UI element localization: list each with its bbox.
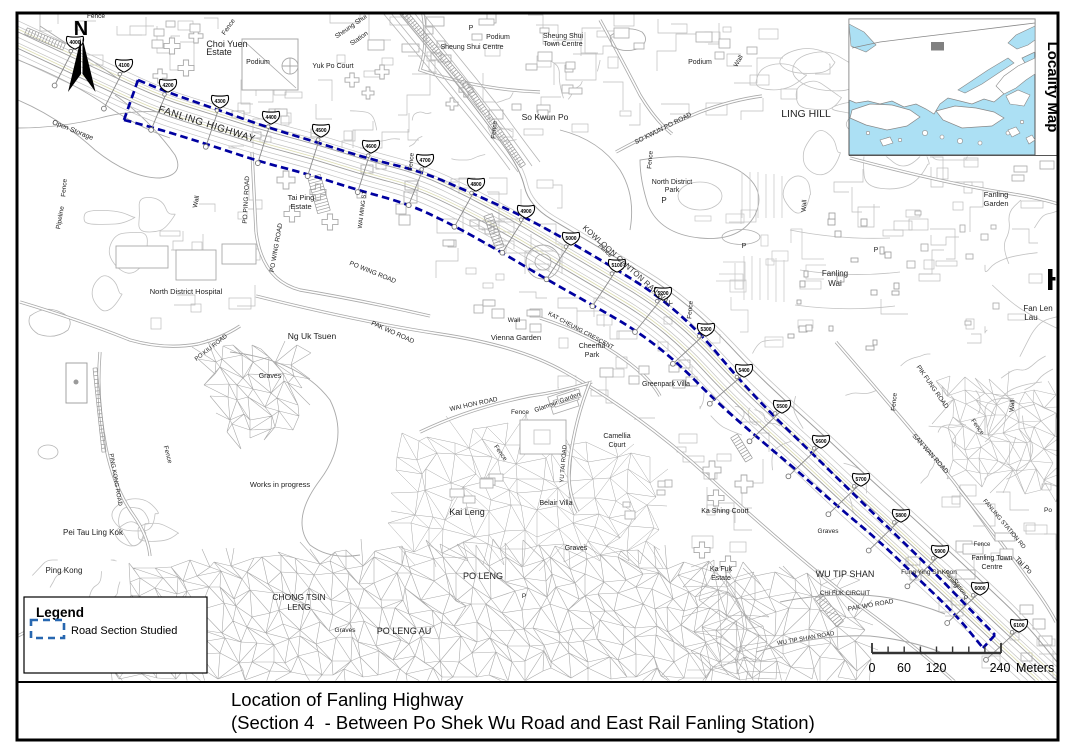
svg-text:120: 120 <box>926 661 947 675</box>
svg-text:Kai Leng: Kai Leng <box>449 507 485 517</box>
svg-text:4700: 4700 <box>419 158 430 164</box>
svg-text:Wall: Wall <box>800 199 808 213</box>
svg-text:5500: 5500 <box>776 404 787 410</box>
svg-text:Podium: Podium <box>688 59 712 66</box>
svg-text:4000: 4000 <box>69 40 80 46</box>
svg-text:LING HILL: LING HILL <box>781 108 831 120</box>
svg-text:P: P <box>742 243 747 250</box>
svg-text:4400: 4400 <box>265 115 276 121</box>
svg-text:So Kwun Po: So Kwun Po <box>522 112 569 122</box>
svg-text:Park: Park <box>665 187 680 194</box>
svg-text:5900: 5900 <box>934 549 945 555</box>
svg-text:Sheung Shui: Sheung Shui <box>543 33 584 40</box>
svg-text:Camellia: Camellia <box>603 433 630 440</box>
svg-text:6100: 6100 <box>1013 623 1024 629</box>
svg-text:P: P <box>661 196 666 205</box>
svg-text:Podium: Podium <box>246 59 270 66</box>
svg-text:PO LENG AU: PO LENG AU <box>377 626 432 636</box>
svg-text:Sheung Shui Centre: Sheung Shui Centre <box>440 44 503 51</box>
svg-text:Fanling: Fanling <box>984 190 1009 199</box>
svg-text:0: 0 <box>869 661 876 675</box>
svg-text:5700: 5700 <box>855 477 866 483</box>
svg-text:N: N <box>74 18 88 40</box>
svg-text:Fanling Town: Fanling Town <box>971 555 1012 562</box>
svg-text:Court: Court <box>608 442 625 449</box>
svg-text:Ng Uk Tsuen: Ng Uk Tsuen <box>288 331 337 341</box>
svg-text:Yuk Po Court: Yuk Po Court <box>312 63 353 70</box>
svg-text:Centre: Centre <box>981 564 1002 571</box>
svg-text:Graves: Graves <box>259 373 282 380</box>
svg-text:Wai: Wai <box>828 279 842 288</box>
svg-text:P: P <box>469 25 474 32</box>
svg-text:4200: 4200 <box>162 83 173 89</box>
svg-text:Wall: Wall <box>1008 399 1016 413</box>
svg-text:Road Section Studied: Road Section Studied <box>71 625 177 637</box>
svg-text:Estate: Estate <box>290 202 311 211</box>
svg-text:WU TIP SHAN: WU TIP SHAN <box>816 569 875 579</box>
svg-text:North District: North District <box>652 179 693 186</box>
svg-text:60: 60 <box>897 661 911 675</box>
svg-text:240: 240 <box>990 661 1011 675</box>
svg-text:Town Centre: Town Centre <box>543 41 582 48</box>
svg-text:5000: 5000 <box>565 236 576 242</box>
svg-text:Wall: Wall <box>508 317 521 324</box>
svg-text:4100: 4100 <box>118 63 129 69</box>
svg-text:Graves: Graves <box>565 545 588 552</box>
svg-text:Greenpark Villa: Greenpark Villa <box>642 381 690 388</box>
svg-text:Ka Shing Court: Ka Shing Court <box>701 508 749 515</box>
svg-text:Belair Villa: Belair Villa <box>540 500 573 507</box>
svg-text:Estate: Estate <box>206 47 232 57</box>
svg-text:Ping Kong: Ping Kong <box>46 566 83 575</box>
svg-text:Fence: Fence <box>511 409 529 416</box>
svg-text:5600: 5600 <box>815 439 826 445</box>
svg-text:5800: 5800 <box>895 513 906 519</box>
svg-text:Fan Len: Fan Len <box>1023 304 1052 313</box>
svg-text:4900: 4900 <box>520 209 531 215</box>
svg-text:5400: 5400 <box>738 368 749 374</box>
svg-text:Park: Park <box>585 352 600 359</box>
svg-text:Fence: Fence <box>974 542 991 548</box>
svg-text:P: P <box>874 247 879 254</box>
svg-text:Po: Po <box>1044 507 1052 514</box>
svg-text:4800: 4800 <box>470 182 481 188</box>
svg-text:Garden: Garden <box>983 199 1008 208</box>
svg-text:Works in progress: Works in progress <box>250 480 311 489</box>
svg-text:Fanling: Fanling <box>822 269 848 278</box>
svg-text:4300: 4300 <box>214 99 225 105</box>
svg-text:6000: 6000 <box>974 586 985 592</box>
svg-text:(Section 4 - Between Po Shek: (Section 4 - Between Po Shek Wu Road and… <box>231 712 815 733</box>
svg-text:Graves: Graves <box>335 627 357 634</box>
svg-text:Tai Ping: Tai Ping <box>288 193 315 202</box>
svg-text:Ka Fuk: Ka Fuk <box>710 566 733 573</box>
svg-text:5300: 5300 <box>700 327 711 333</box>
svg-text:Legend: Legend <box>36 605 84 620</box>
svg-text:P: P <box>964 595 968 602</box>
svg-text:Vienna Garden: Vienna Garden <box>491 333 541 342</box>
svg-text:4500: 4500 <box>315 128 326 134</box>
svg-text:PO LENG: PO LENG <box>463 571 503 581</box>
svg-text:Graves: Graves <box>818 528 840 535</box>
svg-text:Estate: Estate <box>711 575 731 582</box>
svg-text:Meters: Meters <box>1016 661 1054 675</box>
svg-text:LENG: LENG <box>287 602 310 612</box>
svg-text:4600: 4600 <box>365 144 376 150</box>
svg-text:P: P <box>522 593 526 600</box>
svg-text:CHI FUK CIRCUIT: CHI FUK CIRCUIT <box>820 591 870 597</box>
svg-text:Lau: Lau <box>1024 313 1037 322</box>
svg-text:Location of Fanling Highway: Location of Fanling Highway <box>231 689 464 710</box>
svg-text:North District Hospital: North District Hospital <box>150 287 223 296</box>
svg-text:CHONG TSIN: CHONG TSIN <box>272 592 325 602</box>
svg-text:Podium: Podium <box>486 34 510 41</box>
svg-text:Pei Tau Ling Kok: Pei Tau Ling Kok <box>63 528 124 537</box>
